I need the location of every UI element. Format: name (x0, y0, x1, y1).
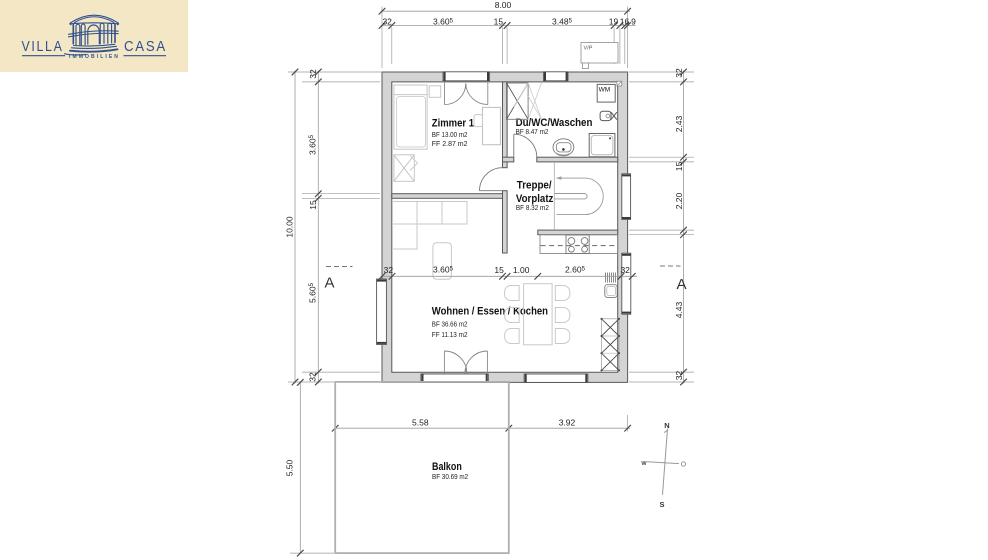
svg-text:32: 32 (308, 69, 318, 79)
svg-text:32: 32 (674, 68, 684, 78)
svg-text:WM: WM (599, 87, 611, 94)
svg-text:BF 8.47 m2: BF 8.47 m2 (516, 127, 549, 136)
svg-text:BF 30.69 m2: BF 30.69 m2 (432, 472, 468, 481)
svg-text:A: A (676, 276, 686, 293)
svg-text:5.58: 5.58 (412, 417, 429, 427)
svg-text:2.20: 2.20 (674, 192, 684, 209)
svg-text:32: 32 (674, 371, 684, 381)
svg-text:32: 32 (384, 265, 394, 275)
svg-text:W: W (641, 461, 647, 467)
svg-text:8.00: 8.00 (495, 0, 512, 10)
svg-text:V/P: V/P (584, 46, 593, 52)
svg-text:15: 15 (494, 17, 504, 27)
svg-text:10.00: 10.00 (285, 216, 295, 238)
svg-text:S: S (659, 500, 664, 509)
svg-text:15: 15 (674, 162, 684, 172)
svg-text:O: O (681, 462, 687, 469)
svg-text:32: 32 (620, 265, 630, 275)
svg-text:32: 32 (382, 17, 392, 27)
svg-text:4.43: 4.43 (674, 301, 684, 318)
svg-text:BF 8.32 m2: BF 8.32 m2 (516, 203, 549, 212)
svg-text:16: 16 (620, 17, 630, 27)
svg-text:5.50: 5.50 (285, 459, 295, 476)
svg-text:15: 15 (308, 200, 318, 210)
svg-text:Wohnen / Essen / Kochen: Wohnen / Essen / Kochen (432, 306, 548, 318)
svg-text:Zimmer 1: Zimmer 1 (432, 117, 474, 129)
svg-text:3.92: 3.92 (559, 417, 576, 427)
svg-text:Treppe/: Treppe/ (517, 180, 552, 192)
svg-text:A: A (324, 275, 334, 292)
svg-text:15: 15 (494, 265, 504, 275)
svg-text:32: 32 (308, 372, 318, 382)
svg-text:19: 19 (609, 17, 619, 27)
svg-text:BF 13.00 m2: BF 13.00 m2 (432, 130, 468, 139)
svg-text:1.00: 1.00 (513, 265, 530, 275)
svg-text:FF 2.87 m2: FF 2.87 m2 (432, 139, 468, 148)
svg-text:BF 36.66 m2: BF 36.66 m2 (432, 320, 468, 329)
svg-text:VILLA: VILLA (22, 38, 64, 55)
svg-text:2.43: 2.43 (674, 115, 684, 132)
svg-text:FF 11.13 m2: FF 11.13 m2 (432, 330, 468, 339)
svg-text:N: N (664, 421, 669, 430)
svg-text:CASA: CASA (124, 38, 167, 55)
svg-text:9: 9 (631, 17, 636, 27)
